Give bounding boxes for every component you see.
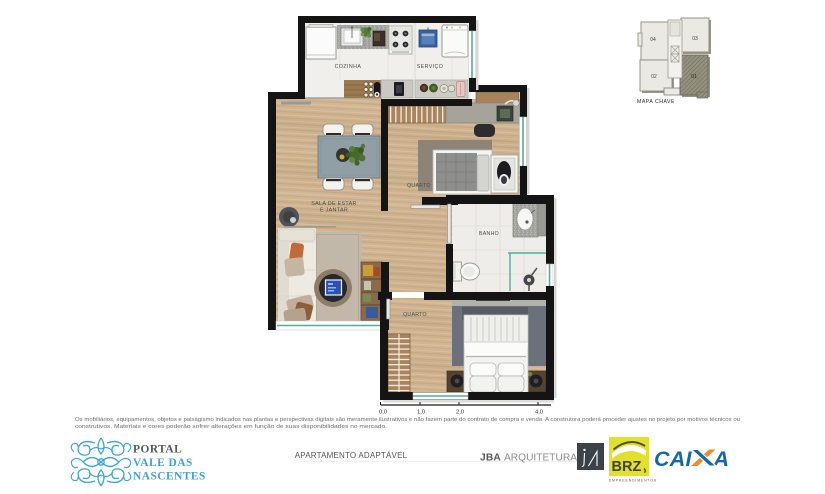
svg-text:BRZ: BRZ bbox=[612, 459, 642, 475]
svg-text:01: 01 bbox=[691, 74, 697, 80]
svg-text:04: 04 bbox=[650, 37, 656, 43]
svg-text:SALA DE ESTAR: SALA DE ESTAR bbox=[311, 201, 356, 207]
svg-text:APARTAMENTO ADAPTÁVEL: APARTAMENTO ADAPTÁVEL bbox=[295, 451, 408, 460]
svg-text:JBA: JBA bbox=[480, 453, 501, 464]
svg-text:1,0: 1,0 bbox=[417, 410, 425, 416]
svg-text:02: 02 bbox=[651, 74, 657, 80]
svg-text:MAPA CHAVE: MAPA CHAVE bbox=[637, 99, 675, 105]
svg-text:QUARTO: QUARTO bbox=[403, 312, 427, 318]
svg-text:BANHO: BANHO bbox=[479, 231, 499, 237]
svg-text:NASCENTES: NASCENTES bbox=[133, 471, 206, 483]
svg-text:A: A bbox=[713, 447, 730, 471]
svg-text:03: 03 bbox=[692, 36, 698, 42]
svg-text:ARQUITETURA: ARQUITETURA bbox=[504, 453, 577, 464]
svg-text:COZINHA: COZINHA bbox=[335, 64, 362, 70]
svg-text:PORTAL: PORTAL bbox=[133, 444, 182, 456]
svg-text:VALE DAS: VALE DAS bbox=[133, 457, 193, 469]
svg-text:4,0: 4,0 bbox=[535, 410, 543, 416]
svg-text:EMPREENDIMENTOS: EMPREENDIMENTOS bbox=[609, 479, 657, 483]
svg-text:0,0: 0,0 bbox=[379, 410, 387, 416]
svg-text:construtivos. Materiais e core: construtivos. Materiais e cores poderão … bbox=[75, 424, 387, 430]
svg-text:SERVIÇO: SERVIÇO bbox=[417, 64, 444, 70]
svg-text:E JANTAR: E JANTAR bbox=[320, 208, 348, 214]
svg-text:Os mobiliários, equipamentos,: Os mobiliários, equipamentos, objetos e … bbox=[75, 417, 740, 423]
svg-text:CAI: CAI bbox=[654, 447, 692, 471]
svg-text:2,0: 2,0 bbox=[456, 410, 464, 416]
svg-text:QUARTO: QUARTO bbox=[407, 183, 431, 189]
